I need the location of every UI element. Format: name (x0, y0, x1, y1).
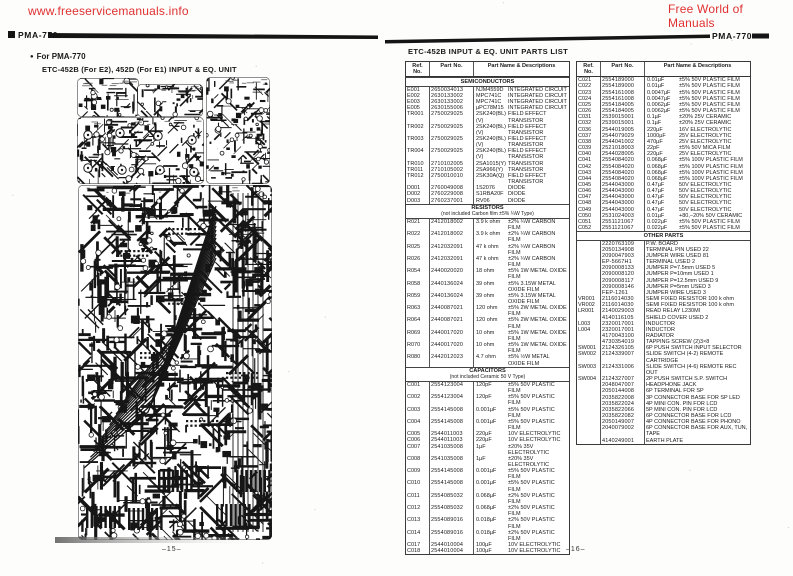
part-no: 2412032091 (430, 256, 474, 268)
part-value: 2SK30A(Q) (474, 173, 507, 185)
table-row: SW0032124331006SLIDE SWITCH (4-6) REMOTE… (577, 364, 750, 376)
table-row: TR00327500290252SK240(BL)(V)FIELD EFFECT… (406, 136, 569, 148)
parts-list-table: Ref. No.Part No.Part Name & Descriptions… (405, 61, 751, 555)
part-value: 0.001µF (474, 480, 507, 492)
part-type: ±2% 50V PLASTIC FILM (507, 517, 569, 529)
part-type: ±2% ¼W CARBON FILM (507, 219, 569, 231)
part-no: 2124331006 (601, 364, 645, 376)
part-value: 2SK240(BL)(V) (474, 124, 507, 136)
part-no: 2440087021 (430, 305, 474, 317)
part-value: 120 ohm (474, 305, 507, 317)
part-no: 2040079002 (601, 425, 645, 437)
part-value: 3.9 k ohm (474, 219, 507, 231)
table-row: D0032760237001RV06DIODE (406, 198, 569, 204)
part-type: ±5% ½W METAL OXIDE FILM (507, 354, 569, 366)
part-desc: 39 ohm±5% 3.15W METAL OXIDE FILM (474, 293, 569, 305)
ref-no: C012 (406, 505, 430, 517)
part-value: 10 ohm (474, 342, 507, 354)
part-type: ±5% 1W METAL OXIDE FILM (507, 330, 569, 342)
table-row: R070244001702010 ohm±5% 1W METAL OXIDE F… (406, 342, 569, 354)
part-type: FIELD EFFECT TRANSISTOR (507, 136, 569, 148)
ref-no: R080 (406, 354, 430, 366)
column-header: Part Name & Descriptions (474, 62, 569, 76)
table-row: R02124120180023.9 k ohm±2% ¼W CARBON FIL… (406, 219, 569, 231)
for-model-heading: ●For PMA-770 (30, 52, 86, 61)
table-row: C00925541450080.001µF±5% 50V PLASTIC FIL… (406, 468, 569, 480)
part-desc: 0.001µF±5% 50V PLASTIC FILM (474, 480, 569, 492)
table-row: C01425540890160.018µF±2% 50V PLASTIC FIL… (406, 530, 569, 542)
part-no: 2554145008 (430, 480, 474, 492)
table-row: R026241203209147 k ohm±2% ¼W CARBON FILM (406, 256, 569, 268)
watermark-text: Free World of Manuals (668, 2, 793, 30)
part-type: ±20% 35V ELECTROLYTIC (507, 456, 569, 468)
part-desc: 6P CONNECTOR BASE FOR AUX, TUN, TAPE (645, 425, 750, 437)
table-row: C0182544010004100µF10V ELECTROLYTIC (406, 548, 569, 554)
ref-no: C001 (406, 382, 430, 394)
part-no: 4140249001 (601, 438, 645, 444)
table-row: R0632440087021120 ohm±5% 2W METAL OXIDE … (406, 305, 569, 317)
part-type: ±5% 1W METAL OXIDE FILM (507, 268, 569, 280)
ref-no: C014 (406, 530, 430, 542)
part-value: 3.9 k ohm (474, 231, 507, 243)
ref-no: R021 (406, 219, 430, 231)
part-no: 2412018002 (430, 219, 474, 231)
part-type: ±2% 50V PLASTIC FILM (507, 493, 569, 505)
part-no: 2541035008 (430, 456, 474, 468)
part-no: 2554123004 (430, 382, 474, 394)
part-no: 2750029025 (430, 111, 474, 123)
ref-no: R025 (406, 244, 430, 256)
parts-table-left-column: Ref. No.Part No.Part Name & Descriptions… (405, 61, 570, 555)
ref-no: C008 (406, 456, 430, 468)
part-desc: RV06DIODE (474, 198, 569, 204)
pcb-panel (205, 75, 281, 191)
part-name: SLIDE SWITCH (4-2) REMOTE CARTRIDGE (645, 351, 750, 363)
ref-no: TR003 (406, 136, 430, 148)
table-row: C0022554123004120pF±5% 50V PLASTIC FILM (406, 394, 569, 406)
table-row: SW0022124339007SLIDE SWITCH (4-2) REMOTE… (577, 351, 750, 363)
part-value: 0.001µF (474, 407, 507, 419)
part-value: RV06 (474, 198, 507, 204)
ref-no: TR004 (406, 148, 430, 160)
part-no: 2544010004 (430, 548, 474, 554)
ref-no: D003 (406, 198, 430, 204)
part-type: ±5% 50V PLASTIC FILM (507, 480, 569, 492)
part-desc: 4.7 ohm±5% ½W METAL OXIDE FILM (474, 354, 569, 366)
part-no: 2554085032 (430, 505, 474, 517)
part-desc: SLIDE SWITCH (4-2) REMOTE CARTRIDGE (645, 351, 750, 363)
ref-no: C013 (406, 517, 430, 529)
part-desc: 0.022µF±5% 50V PLASTIC FILM (645, 225, 750, 231)
table-row: TR00427500290252SK240(BL)(V)FIELD EFFECT… (406, 148, 569, 160)
part-type: FIELD EFFECT TRANSISTOR (507, 111, 569, 123)
model-label-right: PMA-770 (712, 31, 752, 41)
ref-no: R069 (406, 330, 430, 342)
part-type: ±5% 3.15W METAL OXIDE FILM (507, 281, 569, 293)
part-type: FIELD EFFECT TRANSISTOR (507, 148, 569, 160)
part-no: 2554085032 (430, 493, 474, 505)
table-row: TR00227500290252SK240(BL)(V)FIELD EFFECT… (406, 124, 569, 136)
ref-no: C010 (406, 480, 430, 492)
ref-no: SW002 (577, 351, 601, 363)
table-row: TR00127500290252SK240(BL)(V)FIELD EFFECT… (406, 111, 569, 123)
part-type: ±2% ¼W CARBON FILM (507, 256, 569, 268)
part-no: 2554145008 (430, 468, 474, 480)
part-value: 47 k ohm (474, 244, 507, 256)
ref-no: TR002 (406, 124, 430, 136)
table-header-row: Ref. No.Part No.Part Name & Descriptions (577, 62, 750, 77)
ref-no: R026 (406, 256, 430, 268)
watermark-link[interactable]: www.freeservicemanuals.info (28, 4, 189, 18)
part-no: 2750029025 (430, 148, 474, 160)
ref-no: R022 (406, 231, 430, 243)
table-row: R02224120180023.9 k ohm±2% ¼W CARBON FIL… (406, 231, 569, 243)
table-row: C00425541450080.001µF±5% 50V PLASTIC FIL… (406, 419, 569, 431)
part-type: DIODE (507, 198, 569, 204)
unit-title: ETC-452B (For E2), 452D (For E1) INPUT &… (42, 65, 237, 74)
table-row: R054244002002018 ohm±5% 1W METAL OXIDE F… (406, 268, 569, 280)
part-value: 0.068µF (474, 493, 507, 505)
part-value: 0.022µF (645, 225, 678, 231)
part-type: ±5% 50V PLASTIC FILM (507, 407, 569, 419)
part-type: ±5% 2W METAL OXIDE FILM (507, 305, 569, 317)
part-no: 2412032091 (430, 244, 474, 256)
ref-no: C003 (406, 407, 430, 419)
part-value: 1µF (474, 456, 507, 468)
part-type: ±5% 50V PLASTIC FILM (507, 394, 569, 406)
section-header: RESISTORS(not included Carbon film ±5% ¼… (406, 204, 569, 219)
part-no: 2750029025 (430, 136, 474, 148)
part-type: ±5% 50V PLASTIC FILM (678, 225, 750, 231)
table-row: C01025541450080.001µF±5% 50V PLASTIC FIL… (406, 480, 569, 492)
part-desc: 0.001µF±5% 50V PLASTIC FILM (474, 407, 569, 419)
part-no: 2554145008 (430, 407, 474, 419)
part-type: ±5% 1W METAL OXIDE FILM (507, 342, 569, 354)
part-desc: 0.001µF±5% 50V PLASTIC FILM (474, 468, 569, 480)
table-row: C00325541450080.001µF±5% 50V PLASTIC FIL… (406, 407, 569, 419)
part-desc: 10 ohm±5% 1W METAL OXIDE FILM (474, 330, 569, 342)
part-desc: 1µF±20% 35V ELECTROLYTIC (474, 456, 569, 468)
ref-no: C002 (406, 394, 430, 406)
part-value: 2SK240(BL)(V) (474, 111, 507, 123)
table-row: R059244013602439 ohm±5% 3.15W METAL OXID… (406, 293, 569, 305)
table-row: C00725410350081µF±20% 35V ELECTROLYTIC (406, 444, 569, 456)
part-value: 120pF (474, 382, 507, 394)
part-type: ±5% 50V PLASTIC FILM (507, 382, 569, 394)
part-desc: 2SK240(BL)(V)FIELD EFFECT TRANSISTOR (474, 111, 569, 123)
column-header: Part Name & Descriptions (645, 62, 750, 76)
part-type: FIELD EFFECT TRANSISTOR (507, 173, 569, 185)
model-label-left: PMA-770 (18, 30, 58, 40)
for-model-label: For PMA-770 (37, 52, 86, 61)
page-number-right: –16– (566, 546, 586, 553)
ref-no (577, 438, 601, 444)
part-desc: 2SK30A(Q)FIELD EFFECT TRANSISTOR (474, 173, 569, 185)
part-desc: 2SK240(BL)(V)FIELD EFFECT TRANSISTOR (474, 124, 569, 136)
table-row: R069244001702010 ohm±5% 1W METAL OXIDE F… (406, 330, 569, 342)
column-header: Ref. No. (577, 62, 601, 76)
ref-no: C009 (406, 468, 430, 480)
column-header: Ref. No. (406, 62, 430, 76)
part-desc: 2SK240(BL)(V)FIELD EFFECT TRANSISTOR (474, 148, 569, 160)
part-value: 0.001µF (474, 468, 507, 480)
part-no: 2554089016 (430, 517, 474, 529)
ref-no: R063 (406, 305, 430, 317)
part-desc: EARTH PLATE (645, 438, 750, 444)
section-title: OTHER PARTS (577, 233, 750, 239)
part-desc: 120 ohm±5% 2W METAL OXIDE FILM (474, 317, 569, 329)
parts-table-right-column: Ref. No.Part No.Part Name & Descriptions… (576, 61, 751, 445)
section-header: CAPACITORS(not included Ceramic 50 V Typ… (406, 367, 569, 382)
table-row: R08024420120234.7 ohm±5% ½W METAL OXIDE … (406, 354, 569, 366)
column-header: Part No. (430, 62, 474, 76)
table-row: C0012554123004120pF±5% 50V PLASTIC FILM (406, 382, 569, 394)
part-type: ±2% 50V PLASTIC FILM (507, 530, 569, 542)
part-type: 10V ELECTROLYTIC (507, 548, 569, 554)
part-value: 39 ohm (474, 293, 507, 305)
part-type: ±5% 3.15W METAL OXIDE FILM (507, 293, 569, 305)
table-row: C01125540850320.068µF±2% 50V PLASTIC FIL… (406, 493, 569, 505)
section-title: SEMICONDUCTORS (406, 79, 569, 85)
table-row: R0642440087021120 ohm±5% 2W METAL OXIDE … (406, 317, 569, 329)
section-header: OTHER PARTS (577, 231, 750, 240)
part-value: 0.001µF (474, 419, 507, 431)
part-no: 2440017020 (430, 342, 474, 354)
ref-no: C052 (577, 225, 601, 231)
ref-no: R054 (406, 268, 430, 280)
part-no: 2554089016 (430, 530, 474, 542)
ref-no: R059 (406, 293, 430, 305)
part-no: 2440020020 (430, 268, 474, 280)
ref-no: SW003 (577, 364, 601, 376)
part-type: ±5% 50V PLASTIC FILM (507, 468, 569, 480)
part-desc: 120pF±5% 50V PLASTIC FILM (474, 382, 569, 394)
ref-no: R058 (406, 281, 430, 293)
section-note: (not included Ceramic 50 V Type) (406, 375, 569, 381)
part-desc: 1µF±20% 35V ELECTROLYTIC (474, 444, 569, 456)
part-value: 39 ohm (474, 281, 507, 293)
part-desc: 120 ohm±5% 2W METAL OXIDE FILM (474, 305, 569, 317)
bullet-icon: ● (30, 54, 34, 60)
part-no: 2442012023 (430, 354, 474, 366)
part-desc: 47 k ohm±2% ¼W CARBON FILM (474, 256, 569, 268)
part-value: 0.068µF (474, 505, 507, 517)
column-header: Part No. (601, 62, 645, 76)
table-row: R058244013602439 ohm±5% 3.15W METAL OXID… (406, 281, 569, 293)
part-value: 10 ohm (474, 330, 507, 342)
part-type: ±5% 2W METAL OXIDE FILM (507, 317, 569, 329)
section-header: SEMICONDUCTORS (406, 77, 569, 86)
ref-no: TR001 (406, 111, 430, 123)
ref-no: C011 (406, 493, 430, 505)
part-desc: 120pF±5% 50V PLASTIC FILM (474, 394, 569, 406)
part-no: 2124339007 (601, 351, 645, 363)
table-row: R025241203209147 k ohm±2% ¼W CARBON FILM (406, 244, 569, 256)
part-value: 100µF (474, 548, 507, 554)
part-no: 2760237001 (430, 198, 474, 204)
part-no: 2440136024 (430, 293, 474, 305)
table-row: TR01227500100102SK30A(Q)FIELD EFFECT TRA… (406, 173, 569, 185)
part-type: ±2% ¼W CARBON FILM (507, 231, 569, 243)
part-no: 2440087021 (430, 317, 474, 329)
part-type: ±2% ¼W CARBON FILM (507, 244, 569, 256)
part-name: SLIDE SWITCH (4-6) REMOTE REC OUT (645, 364, 750, 376)
part-desc: 0.018µF±2% 50V PLASTIC FILM (474, 530, 569, 542)
part-no: 2541035008 (430, 444, 474, 456)
ref-no: C004 (406, 419, 430, 431)
part-type: FIELD EFFECT TRANSISTOR (507, 124, 569, 136)
ref-no: R064 (406, 317, 430, 329)
part-no: 2750010010 (430, 173, 474, 185)
part-desc: 47 k ohm±2% ¼W CARBON FILM (474, 244, 569, 256)
part-value: 1µF (474, 444, 507, 456)
part-desc: 0.068µF±2% 50V PLASTIC FILM (474, 493, 569, 505)
pcb-panel (77, 110, 211, 193)
table-row: 20400790026P CONNECTOR BASE FOR AUX, TUN… (577, 425, 750, 437)
part-value: 2SK240(BL)(V) (474, 148, 507, 160)
part-no: 2750029025 (430, 124, 474, 136)
part-no: 2440136024 (430, 281, 474, 293)
part-value: 47 k ohm (474, 256, 507, 268)
ref-no: C007 (406, 444, 430, 456)
parts-list-title: ETC-452B INPUT & EQ. UNIT PARTS LIST (408, 47, 568, 56)
ref-no: C018 (406, 548, 430, 554)
part-name: 6P CONNECTOR BASE FOR AUX, TUN, TAPE (645, 425, 750, 437)
table-row: C01325540890160.018µF±2% 50V PLASTIC FIL… (406, 517, 569, 529)
pcb-panel (78, 177, 295, 562)
ref-no: TR012 (406, 173, 430, 185)
part-value: 18 ohm (474, 268, 507, 280)
part-no: 2412018002 (430, 231, 474, 243)
page-number-left: –15– (162, 546, 182, 553)
part-value: 120pF (474, 394, 507, 406)
part-no: 2554145008 (430, 419, 474, 431)
part-value: 0.018µF (474, 530, 507, 542)
part-desc: SLIDE SWITCH (4-6) REMOTE REC OUT (645, 364, 750, 376)
part-type: ±2% 50V PLASTIC FILM (507, 505, 569, 517)
ref-no (577, 425, 601, 437)
part-desc: 39 ohm±5% 3.15W METAL OXIDE FILM (474, 281, 569, 293)
part-type: ±20% 35V ELECTROLYTIC (507, 444, 569, 456)
part-value: 2SK240(BL)(V) (474, 136, 507, 148)
part-no: 2554123004 (430, 394, 474, 406)
table-header-row: Ref. No.Part No.Part Name & Descriptions (406, 62, 569, 77)
part-no: 2551121067 (601, 225, 645, 231)
table-row: C01225540850320.068µF±2% 50V PLASTIC FIL… (406, 505, 569, 517)
part-desc: 0.068µF±2% 50V PLASTIC FILM (474, 505, 569, 517)
table-row: 4140249001EARTH PLATE (577, 438, 750, 444)
part-value: 120 ohm (474, 317, 507, 329)
table-row: C05225511210670.022µF±5% 50V PLASTIC FIL… (577, 225, 750, 231)
section-note: (not included Carbon film ±5% ¼W Type) (406, 212, 569, 218)
part-desc: 0.001µF±5% 50V PLASTIC FILM (474, 419, 569, 431)
part-value: 0.018µF (474, 517, 507, 529)
scanned-manual-page: www.freeservicemanuals.info Free World o… (0, 0, 793, 576)
part-desc: 3.9 k ohm±2% ¼W CARBON FILM (474, 231, 569, 243)
part-type: ±5% 50V PLASTIC FILM (507, 419, 569, 431)
ref-no: R070 (406, 342, 430, 354)
table-row: C00825410350081µF±20% 35V ELECTROLYTIC (406, 456, 569, 468)
part-value: 4.7 ohm (474, 354, 507, 366)
part-desc: 2SK240(BL)(V)FIELD EFFECT TRANSISTOR (474, 136, 569, 148)
part-desc: 100µF10V ELECTROLYTIC (474, 548, 569, 554)
part-desc: 10 ohm±5% 1W METAL OXIDE FILM (474, 342, 569, 354)
part-desc: 18 ohm±5% 1W METAL OXIDE FILM (474, 268, 569, 280)
part-no: 2440017020 (430, 330, 474, 342)
part-name: EARTH PLATE (645, 438, 750, 444)
part-desc: 0.018µF±2% 50V PLASTIC FILM (474, 517, 569, 529)
part-desc: 3.9 k ohm±2% ¼W CARBON FILM (474, 219, 569, 231)
